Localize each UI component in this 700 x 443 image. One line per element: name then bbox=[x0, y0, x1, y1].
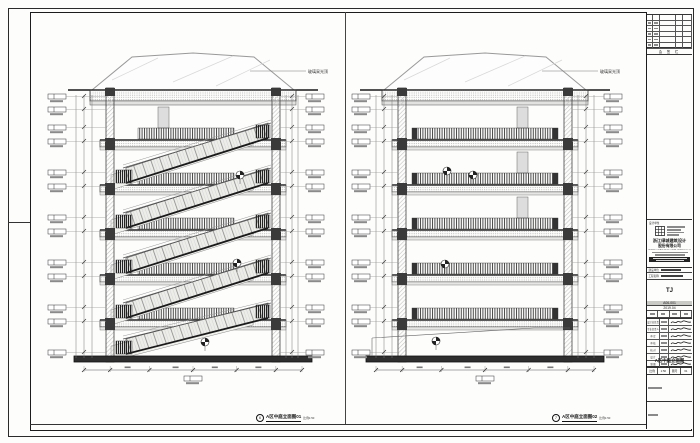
signature-scribble bbox=[669, 319, 692, 325]
notes-box-1 bbox=[647, 375, 692, 402]
signature-row: 设计总负责 bbox=[647, 319, 692, 326]
signature-name bbox=[660, 347, 669, 353]
logo-side-text bbox=[667, 226, 685, 235]
caption-left-scale: 比例1:50 bbox=[303, 416, 314, 420]
sheet-number: 61 bbox=[681, 368, 692, 374]
section-divider bbox=[345, 12, 346, 424]
signature-role-label: 审 核 bbox=[647, 340, 660, 346]
company-name-en: GREENTON ARCHITECTURAL DESIGN CO.,LTD. bbox=[648, 249, 691, 251]
signature-scribble bbox=[669, 333, 692, 339]
signature-role-label: 专业负责人 bbox=[647, 326, 660, 332]
signature-row: 校 对 bbox=[647, 347, 692, 354]
design-unit-label: 设计单位 bbox=[649, 221, 659, 225]
caption-left-number: 6 bbox=[256, 414, 264, 422]
design-unit-block: 设计单位 浙江绿城建筑设计 股份有限公司 GREENTON ARCHITECTU… bbox=[647, 220, 692, 268]
signature-name bbox=[660, 326, 669, 332]
company-cert-strip bbox=[649, 257, 690, 262]
scale-value: 1:50 bbox=[658, 368, 669, 374]
caption-mid: 7 A区中庭立面图02 比例1:50 bbox=[552, 413, 610, 423]
signature-scribble bbox=[669, 347, 692, 353]
project-fields: 建设单位 工程名称 TJ A06-001 2019.04 bbox=[647, 268, 692, 319]
signature-role-label: 设计总负责 bbox=[647, 319, 660, 325]
signature-role-label: 审 定 bbox=[647, 333, 660, 339]
sub-cells-row bbox=[647, 311, 692, 318]
caption-mid-number: 7 bbox=[552, 414, 560, 422]
title-block: 会 签 栏 设计单位 浙江绿城建筑设计 股份有限公司 GREENTON AR bbox=[646, 12, 692, 429]
signature-name bbox=[660, 333, 669, 339]
signature-name bbox=[660, 340, 669, 346]
scale-label: 比例 bbox=[647, 368, 658, 374]
caption-left: 6 A区中庭立面图01 比例1:50 bbox=[256, 413, 314, 423]
company-logo-icon bbox=[655, 226, 665, 236]
caption-strip-line bbox=[30, 424, 646, 425]
caption-left-title: A区中庭立面图01 bbox=[266, 414, 301, 422]
notes-box-2 bbox=[647, 402, 692, 429]
scale-row: 比例 1:50 图号 61 bbox=[647, 368, 692, 375]
sign-bar: 会 签 栏 bbox=[647, 48, 692, 55]
stage-code: TJ bbox=[647, 280, 692, 301]
signature-name bbox=[660, 319, 669, 325]
drawing-sheet: 玻璃采光顶 玻璃采光顶 6 A区中庭立面图01 比例1:50 7 A区中庭立面图… bbox=[0, 0, 700, 443]
revision-table bbox=[647, 14, 692, 48]
drawing-title: A区中庭立面图 bbox=[647, 355, 692, 368]
signature-row: 审 核 bbox=[647, 340, 692, 347]
inner-frame bbox=[30, 12, 692, 431]
signature-row: 审 定 bbox=[647, 333, 692, 340]
caption-mid-scale: 比例1:50 bbox=[599, 416, 610, 420]
signature-scribble bbox=[669, 326, 692, 332]
caption-mid-title: A区中庭立面图02 bbox=[562, 414, 597, 422]
sheet-label: 图号 bbox=[670, 368, 681, 374]
signature-role-label: 校 对 bbox=[647, 347, 660, 353]
title-block-empty-panel bbox=[647, 55, 692, 220]
signature-row: 专业负责人 bbox=[647, 326, 692, 333]
client-label: 建设单位 bbox=[649, 268, 659, 272]
project-label: 工程名称 bbox=[649, 274, 659, 278]
centering-tick bbox=[8, 222, 30, 223]
signature-scribble bbox=[669, 340, 692, 346]
